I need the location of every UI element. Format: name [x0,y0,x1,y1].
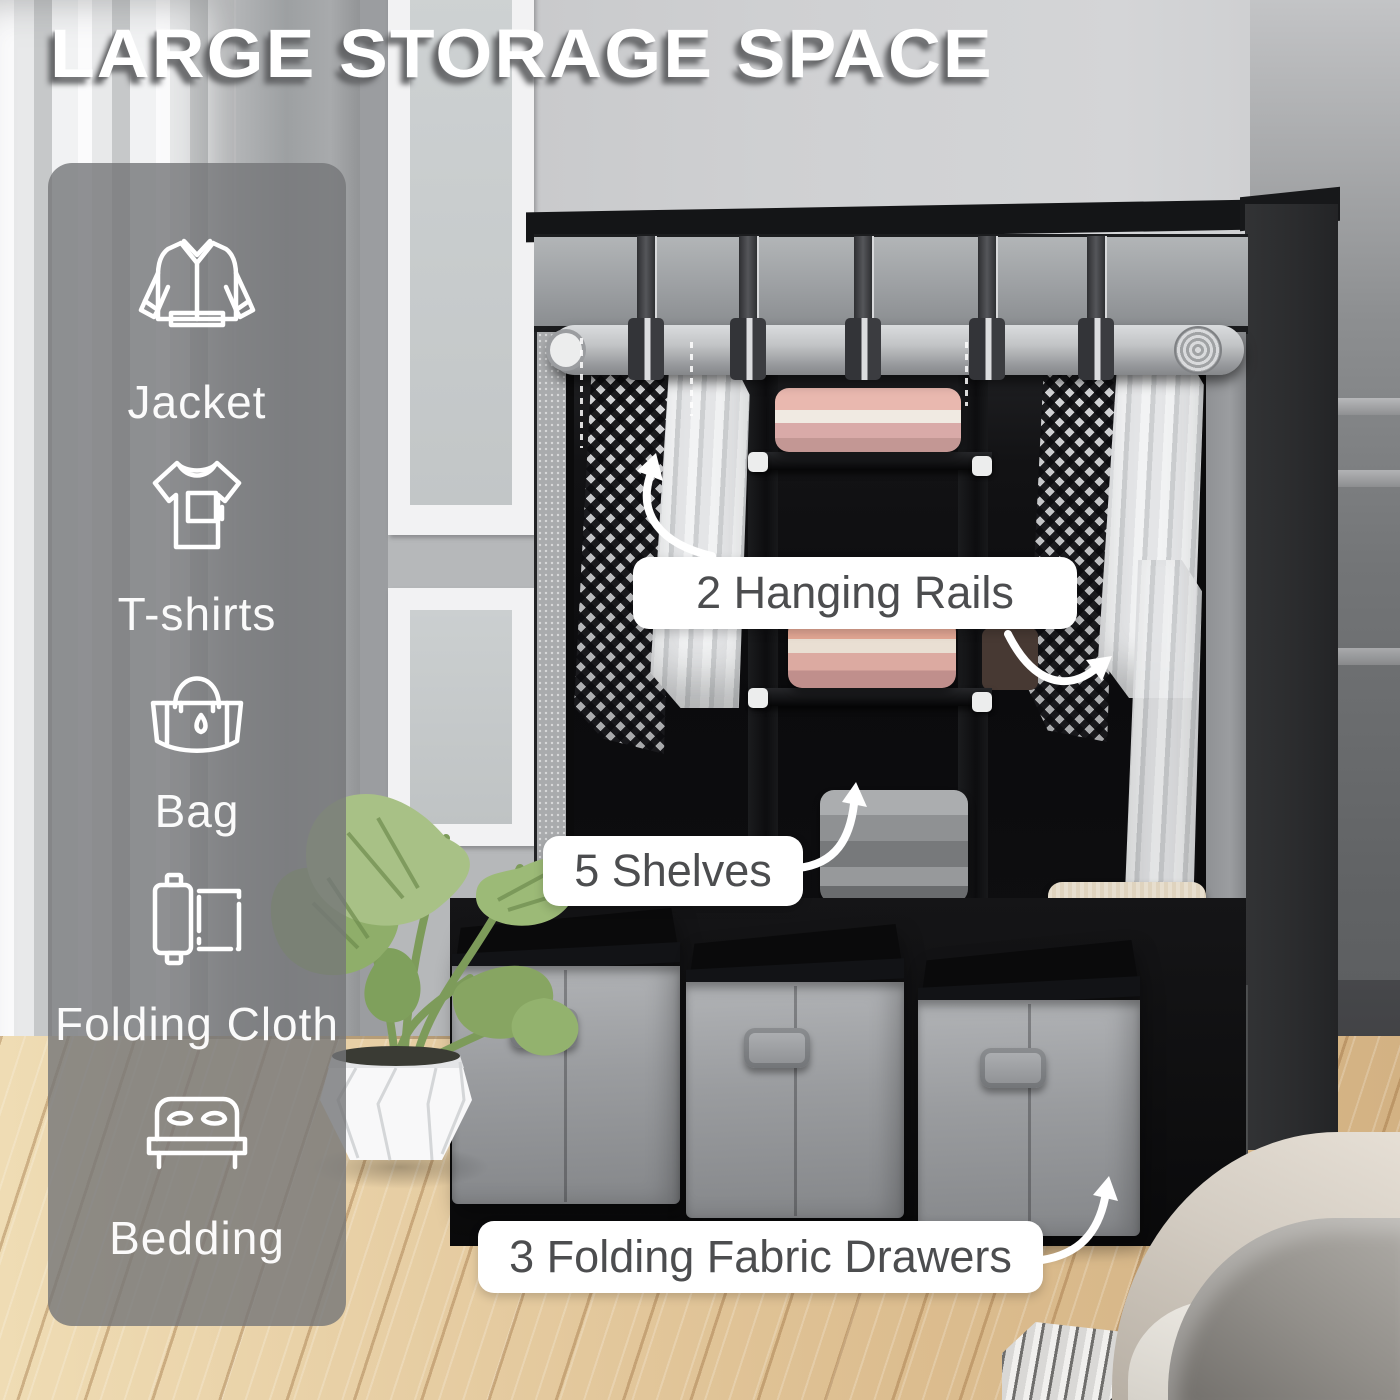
drawer-handle [980,1048,1046,1088]
sidebar-item-label: Folding Cloth [48,997,346,1051]
cover-strap-band [969,318,1005,380]
callout-fabric-drawers: 3 Folding Fabric Drawers [478,1221,1043,1293]
feature-sidebar: Jacket T-shirts Bag Folding Cloth [48,163,346,1326]
sidebar-item-label: Bedding [48,1211,346,1265]
sidebar-item-label: Bag [48,784,346,838]
tshirt-icon [137,445,257,565]
roll-end-cap [1174,326,1222,374]
cover-strap-band [730,318,766,380]
shelf-connector [972,456,992,476]
sidebar-item-label: Jacket [48,375,346,429]
shelf-connector [972,692,992,712]
fabric-drawer-3 [918,940,1140,1236]
checkered-garment [1028,360,1118,742]
drawer-seam [1028,1004,1031,1234]
folded-clothes-gray [820,790,968,903]
bedding-icon [137,1075,257,1195]
callout-shelves: 5 Shelves [543,836,803,906]
zipper [690,342,693,416]
sidebar-item-label: T-shirts [48,587,346,641]
callout-hanging-rails: 2 Hanging Rails [633,557,1077,629]
callout-label: 2 Hanging Rails [696,567,1014,619]
jacket-icon [137,227,257,347]
cover-strap-band [628,318,664,380]
bag-icon [137,653,257,773]
shelf [752,452,992,470]
shelf-connector [748,452,768,472]
zipper [580,338,583,448]
callout-label: 5 Shelves [574,845,772,897]
drawer-seam [794,986,797,1216]
shelf [752,688,992,706]
fabric-drawer-2 [686,924,904,1218]
callout-label: 3 Folding Fabric Drawers [509,1231,1012,1283]
folded-clothes-brown [982,628,1038,690]
zipper [965,342,968,406]
folding-cloth-icon [137,857,257,977]
product-infographic: Jacket T-shirts Bag Folding Cloth [0,0,1400,1400]
wardrobe-side-panel [1245,204,1338,1150]
drawer-handle [744,1028,810,1068]
folded-clothes-pink [775,388,961,452]
page-title: LARGE STORAGE SPACE [50,14,1400,93]
cover-strap-band [845,318,881,380]
shelf-connector [748,688,768,708]
cover-strap-band [1078,318,1114,380]
wardrobe-inner-cover [1206,332,1246,972]
